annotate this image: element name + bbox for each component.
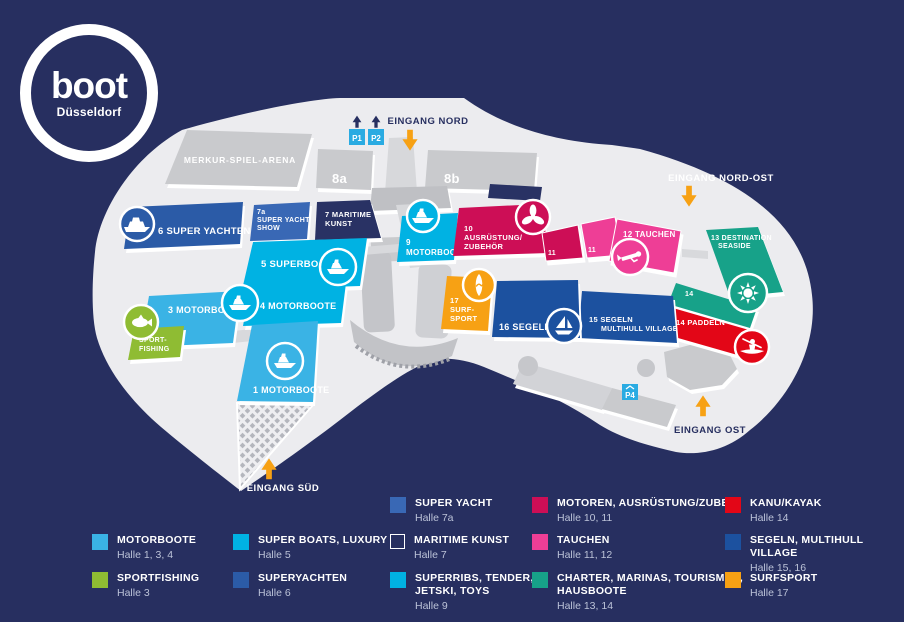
service-building [488,184,542,201]
parking-p4: P4 [622,384,638,400]
boot-duesseldorf-site-plan: boot Düsseldorf [0,0,904,622]
sailboat-icon [547,309,581,343]
arena-label: MERKUR-SPIEL-ARENA [184,155,296,165]
hall-7-label: 7 MARITIME [325,210,371,219]
hall-14-paddeln-label: 14 PADDELN [676,318,725,327]
hall-7-label: KUNST [325,219,352,228]
hall-15-label: 15 SEGELN [589,315,633,324]
hall-10-label: 10 [464,224,473,233]
hall-13-label: 13 DESTINATION [711,235,772,242]
hall-14-label: 14 [685,291,693,298]
hall-10-label: AUSRÜSTUNG/ [464,233,523,242]
hall-11-label: 11 [548,250,556,257]
hall-17-label: SURF- [450,305,475,314]
hall-11-label: 11 [588,247,596,254]
hall-7a[interactable]: 7a SUPER YACHT SHOW [250,202,310,241]
hall-8a-label: 8a [332,171,348,186]
sportfishing-label: FISHING [139,346,170,353]
logo-brand: boot [31,67,147,104]
boot-logo: boot Düsseldorf [20,24,158,162]
motorboat-icon [407,200,439,232]
propeller-icon [516,200,550,234]
entrance-nord-label: EINGANG NORD [388,116,469,127]
hall-1-label: 1 MOTORBOOTE [253,385,329,395]
hall-7a-label: SHOW [257,225,280,232]
hall-4-label: 4 MOTORBOOTE [260,301,336,311]
hall-7a-label: 7a [257,209,265,216]
diver-icon [612,239,648,275]
hall-16-label: 16 SEGELN [499,322,551,332]
hall-15[interactable]: 15 SEGELN MULTIHULL VILLAGE [578,291,678,343]
merkur-spiel-arena: MERKUR-SPIEL-ARENA [165,130,312,187]
parking-p4-label: P4 [625,391,635,400]
yacht-icon [120,207,154,241]
hall-8b-label: 8b [444,171,460,186]
hall-7a-label: SUPER YACHT [257,217,310,224]
motorboat-icon [320,249,356,285]
kayak-icon [735,330,769,364]
hall-17-label: 17 [450,296,459,305]
logo-city: Düsseldorf [31,105,147,119]
hall-6-label: 6 SUPER YACHTEN [158,226,251,237]
hall-9-label: 9 [406,238,411,247]
entrance-ost-label: EINGANG OST [674,425,746,436]
hall-13-label: SEASIDE [718,243,751,250]
motorboat-icon [267,343,303,379]
sun-icon [729,274,767,312]
motorboat-icon [222,285,258,321]
parking-p1-label: P1 [352,134,362,143]
hall-7[interactable]: 7 MARITIME KUNST [315,200,381,240]
parking-p2-label: P2 [371,134,381,143]
hall-15-label: MULTIHULL VILLAGE [601,326,678,333]
hall-12-label: 12 TAUCHEN [623,230,676,239]
hall-8a[interactable]: 8a [316,149,373,190]
hall-10-label: ZUBEHÖR [464,242,503,251]
fish-icon [124,305,158,339]
hall-17-label: SPORT [450,314,477,323]
hall-8b[interactable]: 8b [425,150,537,191]
entrance-nordost-label: EINGANG NORD-OST [668,173,774,184]
surfboard-icon [463,269,495,301]
entrance-sued-label: EINGANG SÜD [247,483,320,494]
